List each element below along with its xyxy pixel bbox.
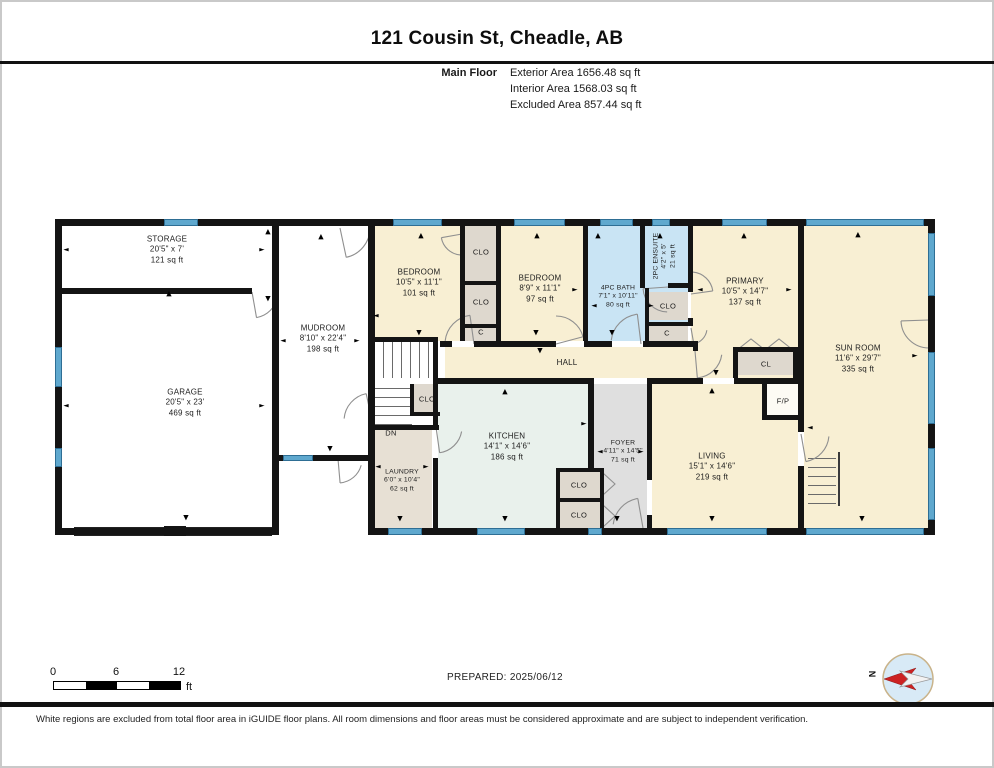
arrow-up-icon: ▲ [595,233,600,240]
room-dims: 8'9" x 11'1" [519,284,562,294]
room-label-storage: STORAGE 20'5" x 7' 121 sq ft [147,234,187,265]
arrow-down-icon: ▼ [713,370,718,377]
scale-unit: ft [186,681,192,693]
room-name: MUDROOM [300,323,346,333]
room-label-ensuite: 2PC ENSUITE 4'2" x 5' 21 sq ft [652,233,677,280]
wall-segment [368,425,439,430]
arrow-right-icon: ► [648,303,653,310]
room-name: FOYER [603,439,642,447]
wall-segment [440,341,452,347]
room-area: 198 sq ft [300,344,346,354]
compass-rose-icon [878,651,936,707]
room-name: HALL [557,358,578,368]
arrow-right-icon: ► [259,403,264,410]
arrow-left-icon: ◄ [591,303,596,310]
wall-segment [798,226,804,432]
room-dims: 11'6" x 29'7" [835,354,881,364]
room-name: PRIMARY [722,276,768,286]
window-segment [477,528,525,535]
wall-segment [460,281,501,285]
room-area: 121 sq ft [147,255,187,265]
room-area: 97 sq ft [519,294,562,304]
wall-segment [600,468,604,528]
arrow-right-icon: ► [638,449,643,456]
room-area: 335 sq ft [835,364,881,374]
wall-segment [668,283,693,288]
room-name: BEDROOM [396,267,442,277]
room-label-hall: HALL [557,358,578,368]
floor-plan-page: 121 Cousin St, Cheadle, AB Main Floor Ex… [0,0,994,768]
wall-segment [588,384,594,470]
wall-segment [640,226,645,286]
room-area: 469 sq ft [166,408,205,418]
room-area: 219 sq ft [689,472,735,482]
arrow-down-icon: ▼ [183,515,188,522]
window-segment [388,528,422,535]
arrow-right-icon: ► [581,421,586,428]
wall-segment [647,384,652,480]
wall-segment [647,515,652,528]
arrow-down-icon: ▼ [327,446,332,453]
wall-segment [583,226,588,341]
arrow-up-icon: ▲ [534,233,539,240]
stairs-upper [374,341,435,378]
room-dims: 20'5" x 23' [166,398,205,408]
arrow-left-icon: ◄ [280,338,285,345]
wall-segment [279,219,375,226]
wall-segment [556,468,600,472]
room-dims: 4'2" x 5' [661,233,669,280]
stair-rail [838,452,840,506]
room-area: 62 sq ft [384,485,420,493]
window-segment [164,219,198,226]
arrow-down-icon: ▼ [533,330,538,337]
arrow-up-icon: ▲ [709,388,714,395]
disclaimer-text: White regions are excluded from total fl… [36,714,966,725]
window-segment [55,448,62,467]
arrow-down-icon: ▼ [265,296,270,303]
scale-segment [149,682,181,689]
scale-tick-0: 0 [50,666,56,678]
arrow-up-icon: ▲ [741,233,746,240]
floor-plan: STORAGE 20'5" x 7' 121 sq ft GARAGE 20'5… [0,0,994,768]
window-segment [667,528,767,535]
wall-segment [474,341,556,347]
room-area: 80 sq ft [598,301,637,309]
room-dims: 4'11" x 14'5" [603,448,642,456]
arrow-down-icon: ▼ [416,330,421,337]
closet-label: CLO [660,302,676,311]
arrow-down-icon: ▼ [537,348,542,355]
room-name: 4PC BATH [598,284,637,292]
room-label-kitchen: KITCHEN 14'1" x 14'6" 186 sq ft [484,431,530,462]
wall-segment [460,324,501,328]
room-dims: 14'1" x 14'6" [484,442,530,452]
stairs-down [374,382,412,425]
window-segment [928,233,935,296]
scale-tick-12: 12 [173,666,185,678]
arrow-down-icon: ▼ [609,330,614,337]
room-name: 2PC ENSUITE [652,233,660,280]
wall-segment [643,341,693,347]
room-dims: 10'5" x 11'1" [396,278,442,288]
arrow-down-icon: ▼ [859,516,864,523]
closet-label: CL [761,360,771,369]
arrow-left-icon: ◄ [375,464,380,471]
room-area: 71 sq ft [603,456,642,464]
wall-segment [733,347,738,378]
wall-segment [762,415,803,420]
room-label-bedroom-1: BEDROOM 10'5" x 11'1" 101 sq ft [396,267,442,298]
room-name: KITCHEN [484,431,530,441]
wall-segment [272,219,279,535]
arrow-right-icon: ► [354,338,359,345]
room-label-primary: PRIMARY 10'5" x 14'7" 137 sq ft [722,276,768,307]
closet-label: CLO [571,481,587,490]
arrow-up-icon: ▲ [657,233,662,240]
window-segment [393,219,442,226]
room-label-bath: 4PC BATH 7'1" x 10'11" 80 sq ft [598,284,637,309]
arrow-down-icon: ▼ [397,516,402,523]
room-dims: 20'5" x 7' [147,245,187,255]
arrow-right-icon: ► [572,287,577,294]
wall-segment [793,347,798,378]
stairs-sunroom [808,452,836,504]
closet-label: CLO [473,248,489,257]
closet-label: C [478,328,484,337]
room-label-laundry: LAUNDRY 6'0" x 10'4" 62 sq ft [384,468,420,493]
wall-segment [438,378,594,384]
window-segment [652,219,670,226]
window-segment [928,448,935,520]
footer-divider [0,702,994,707]
wall-segment [433,458,438,528]
window-segment [806,528,924,535]
wall-segment [645,288,649,345]
room-area: 21 sq ft [669,233,677,280]
wall-segment [410,412,440,416]
room-name: BEDROOM [519,273,562,283]
room-dims: 7'1" x 10'11" [598,293,637,301]
window-segment [55,347,62,387]
arrow-up-icon: ▲ [265,229,270,236]
window-segment [806,219,924,226]
window-segment [588,528,602,535]
arrow-left-icon: ◄ [63,403,68,410]
closet-label: CLO [473,298,489,307]
room-label-foyer: FOYER 4'11" x 14'5" 71 sq ft [603,439,642,464]
prepared-date: PREPARED: 2025/06/12 [447,672,563,683]
wall-segment [368,219,375,535]
scale-segment [86,682,118,689]
fireplace-label: F/P [777,397,790,406]
wall-segment [693,341,698,351]
arrow-up-icon: ▲ [166,291,171,298]
arrow-left-icon: ◄ [807,425,812,432]
closet-label: C [664,329,670,338]
door-arc [338,459,361,483]
door-arc [340,228,370,257]
wall-segment [733,347,797,352]
window-segment [514,219,565,226]
arrow-right-icon: ► [786,287,791,294]
room-label-bedroom-2: BEDROOM 8'9" x 11'1" 97 sq ft [519,273,562,304]
wall-segment [647,378,703,384]
arrow-up-icon: ▲ [502,389,507,396]
arrow-right-icon: ► [912,353,917,360]
arrow-down-icon: ▼ [614,516,619,523]
room-dims: 10'5" x 14'7" [722,287,768,297]
closet-label: CLO [571,511,587,520]
room-dims: 8'10" x 22'4" [300,334,346,344]
wall-segment [556,498,604,502]
room-label-sunroom: SUN ROOM 11'6" x 29'7" 335 sq ft [835,343,881,374]
arrow-left-icon: ◄ [373,313,378,320]
scale-segment [54,682,86,689]
arrow-up-icon: ▲ [318,234,323,241]
arrow-left-icon: ◄ [597,449,602,456]
room-name: GARAGE [166,387,205,397]
room-name: STORAGE [147,234,187,244]
compass-north-label: N [867,671,877,678]
wall-segment [584,341,612,347]
arrow-down-icon: ▼ [502,516,507,523]
wall-segment [62,288,252,294]
arrow-right-icon: ► [423,464,428,471]
window-segment [600,219,633,226]
room-dims: 15'1" x 14'6" [689,462,735,472]
room-dims: 6'0" x 10'4" [384,477,420,485]
scale-bar [53,681,181,690]
window-segment [928,352,935,424]
window-segment [283,455,313,461]
arrow-up-icon: ▲ [418,233,423,240]
wall-segment [55,528,279,535]
room-area: 186 sq ft [484,452,530,462]
wall-segment [368,337,438,342]
scale-segment [117,682,149,689]
room-area: 101 sq ft [396,288,442,298]
room-name: LIVING [689,451,735,461]
room-label-garage: GARAGE 20'5" x 23' 469 sq ft [166,387,205,418]
scale-tick-6: 6 [113,666,119,678]
room-label-mudroom: MUDROOM 8'10" x 22'4" 198 sq ft [300,323,346,354]
wall-segment [798,466,804,528]
arrow-right-icon: ► [259,247,264,254]
window-segment [722,219,767,226]
room-name: SUN ROOM [835,343,881,353]
arrow-down-icon: ▼ [709,516,714,523]
arrow-up-icon: ▲ [855,232,860,239]
wall-segment [645,322,692,326]
room-label-living: LIVING 15'1" x 14'6" 219 sq ft [689,451,735,482]
arrow-left-icon: ◄ [697,287,702,294]
room-area: 137 sq ft [722,297,768,307]
room-name: LAUNDRY [384,468,420,476]
arrow-left-icon: ◄ [63,247,68,254]
